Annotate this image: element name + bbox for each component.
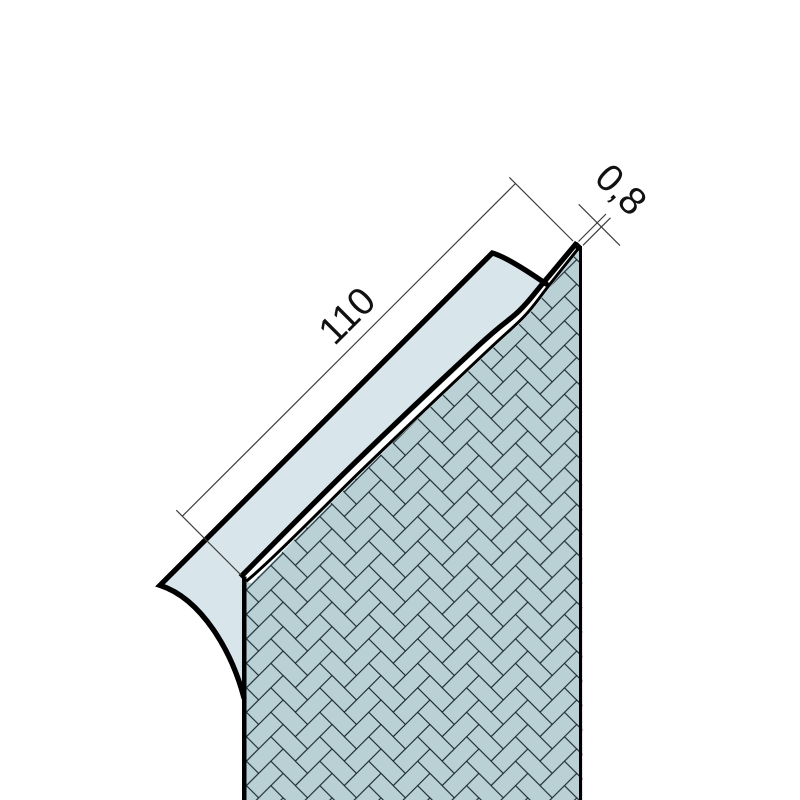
svg-text:110: 110 <box>310 279 384 353</box>
svg-text:0,8: 0,8 <box>587 156 655 224</box>
